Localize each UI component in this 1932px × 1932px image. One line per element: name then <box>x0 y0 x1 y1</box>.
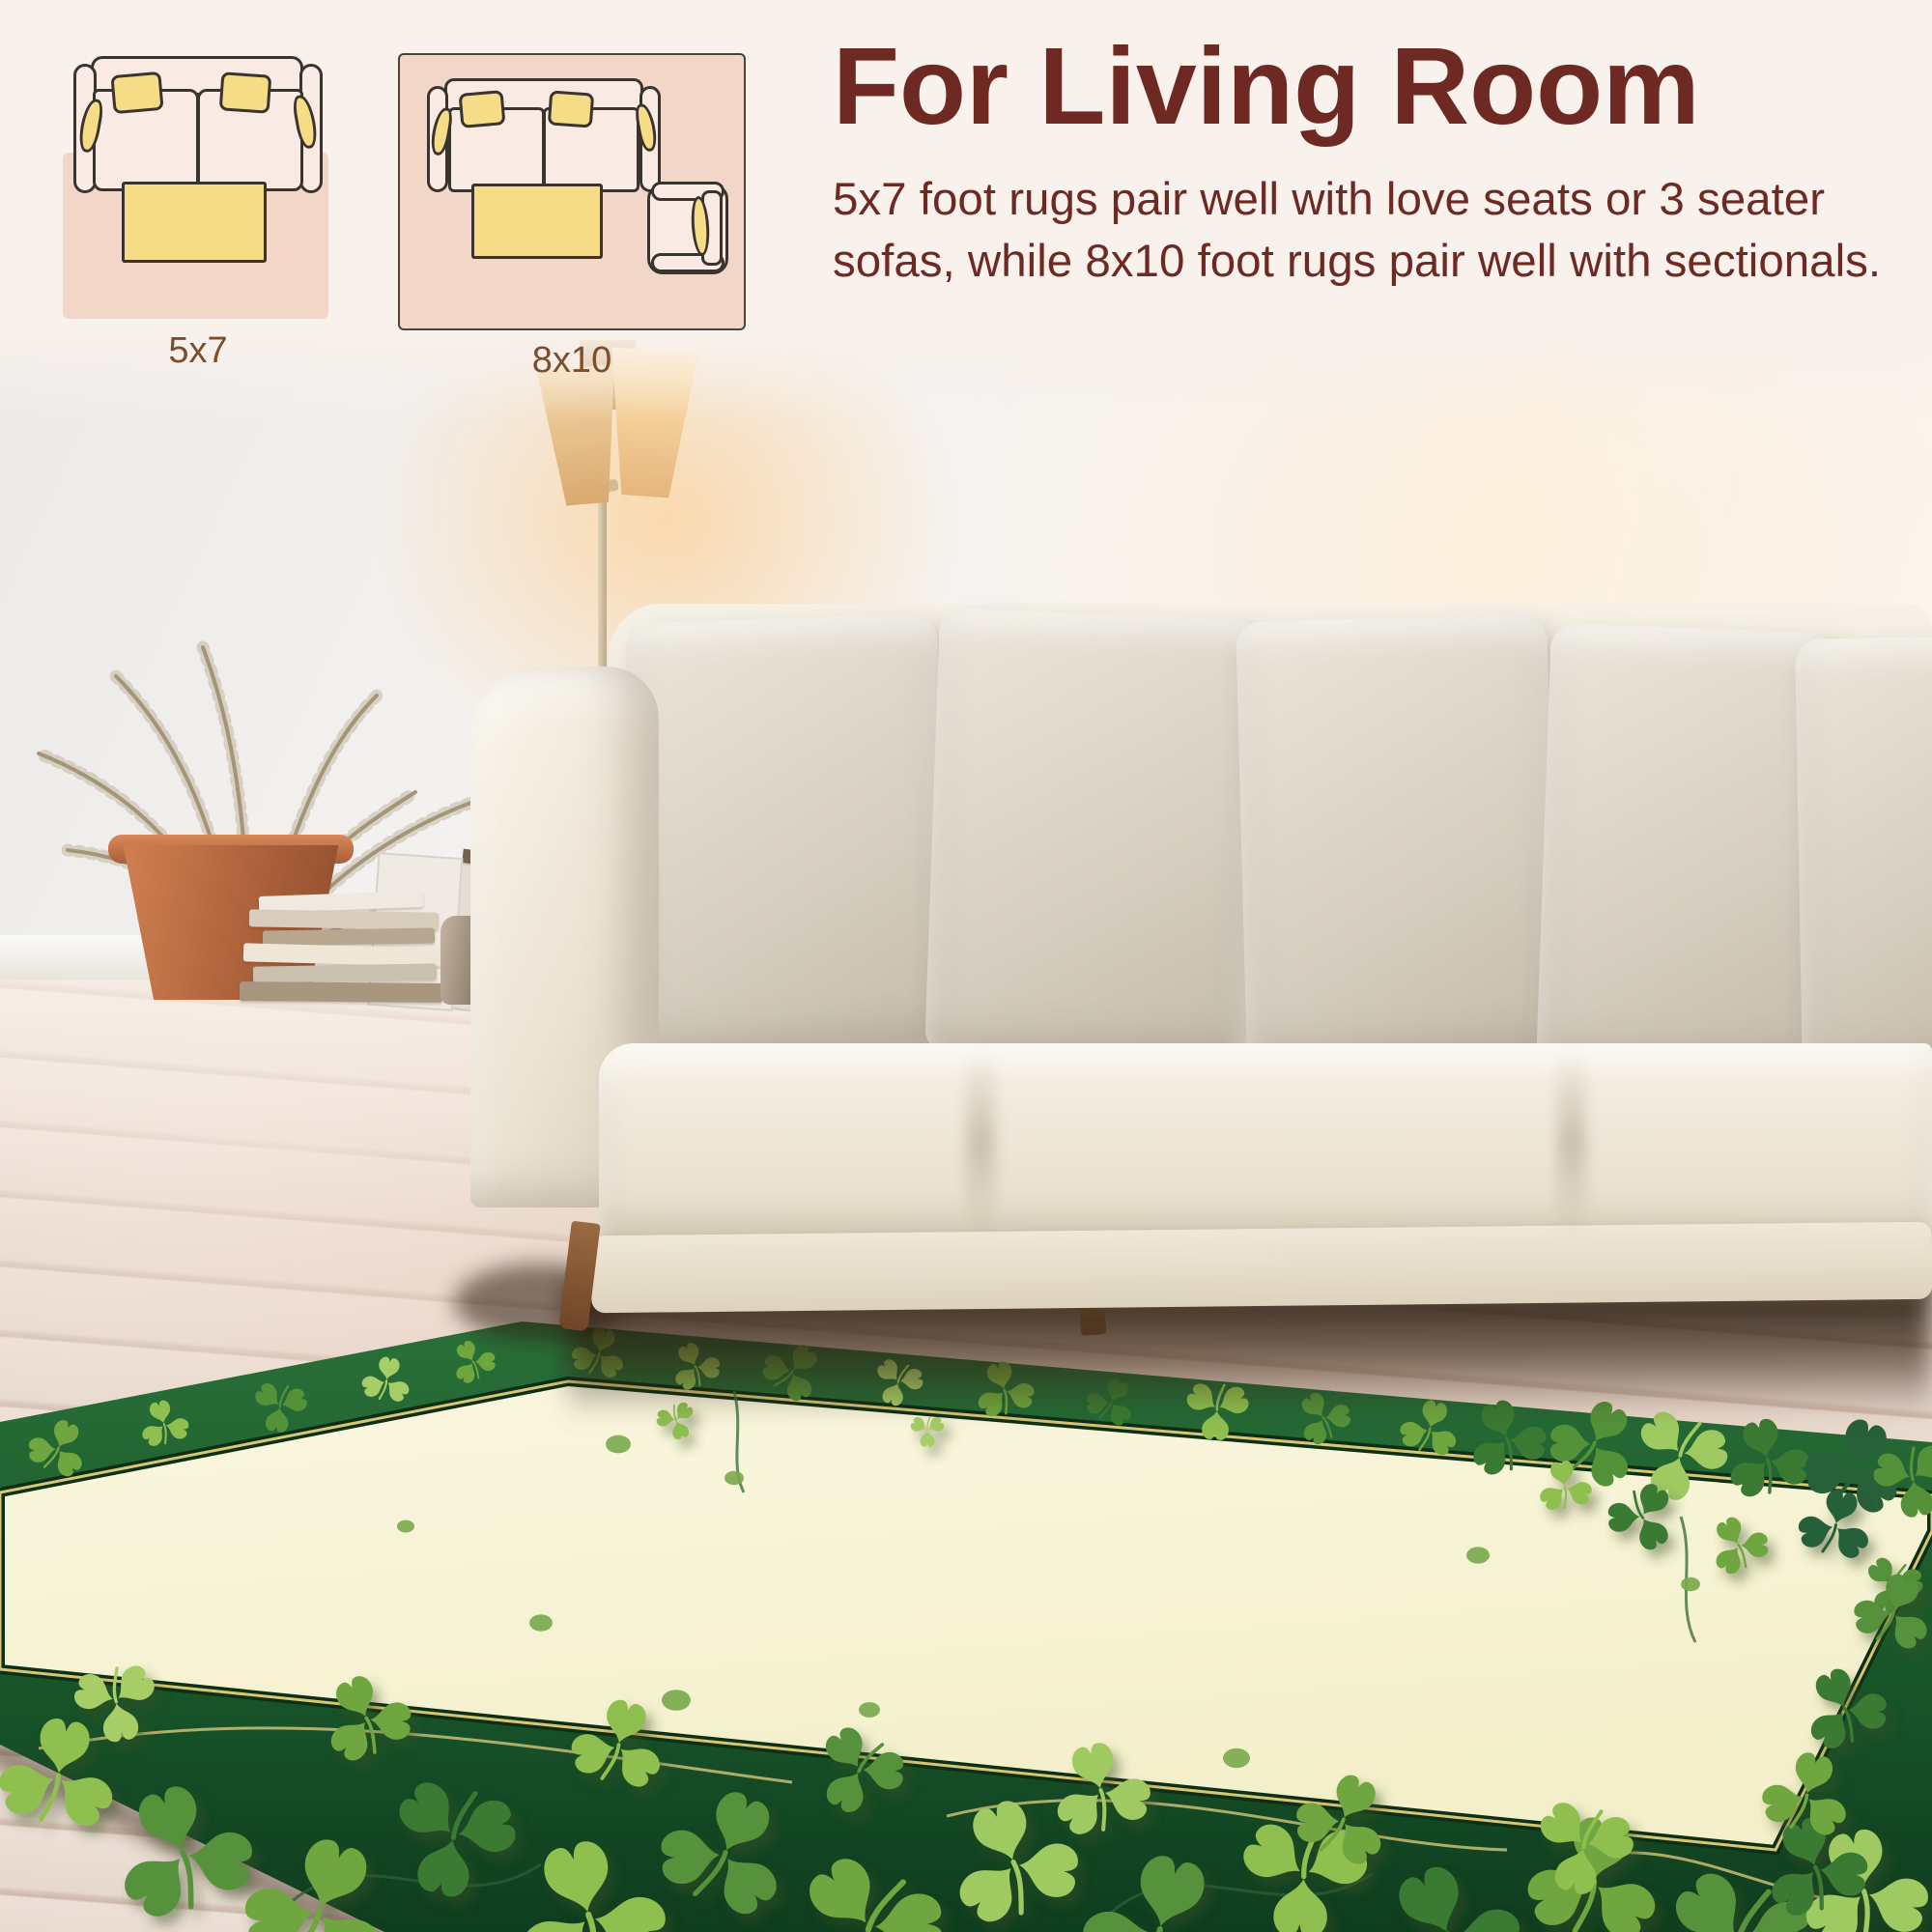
clover-dot <box>1223 1748 1250 1768</box>
sofa-pillow <box>924 608 1259 1065</box>
clover-dot <box>662 1690 691 1711</box>
clover-dot <box>1681 1577 1700 1591</box>
clover-dot <box>859 1702 880 1718</box>
sofa-pillow <box>1236 614 1558 1066</box>
sofa-pillow <box>1795 636 1932 1075</box>
living-room-photo <box>0 328 1932 1932</box>
clover-dot <box>724 1471 744 1485</box>
diagram-label-5x7: 5x7 <box>58 330 338 372</box>
sofa-pillow <box>625 613 952 1061</box>
sofa-seat-cushion <box>599 1043 1932 1251</box>
diagram-pillow <box>459 90 506 128</box>
sofa-pillow <box>1536 623 1833 1075</box>
diagram-coffee-table <box>471 184 603 259</box>
sofa-base <box>591 1222 1932 1314</box>
header-band: 5x7 8x10 For Living Room 5x7 foot ru <box>0 0 1932 386</box>
description-line-1: 5x7 foot rugs pair well with love seats … <box>833 169 1932 232</box>
cushion-seam <box>966 1051 995 1235</box>
size-diagram-5x7 <box>58 39 338 328</box>
clover-dot <box>397 1520 414 1533</box>
diagram-label-8x10: 8x10 <box>394 340 750 382</box>
cushion-seam <box>1557 1051 1586 1235</box>
diagram-pillow <box>110 71 163 114</box>
clover-dot <box>529 1614 553 1631</box>
clover-dot <box>1466 1547 1490 1563</box>
clover-dot <box>606 1435 631 1454</box>
diagram-pillow <box>548 90 594 128</box>
description-text: 5x7 foot rugs pair well with love seats … <box>833 169 1932 294</box>
product-infographic: 5x7 8x10 For Living Room 5x7 foot ru <box>0 0 1932 1932</box>
diagram-pillow <box>219 71 272 114</box>
diagram-coffee-table <box>122 182 267 263</box>
page-title: For Living Room <box>833 29 1932 144</box>
description-line-2: sofas, while 8x10 foot rugs pair well wi… <box>833 231 1932 294</box>
headline-block: For Living Room 5x7 foot rugs pair well … <box>833 29 1932 294</box>
size-diagram-8x10 <box>394 34 750 335</box>
